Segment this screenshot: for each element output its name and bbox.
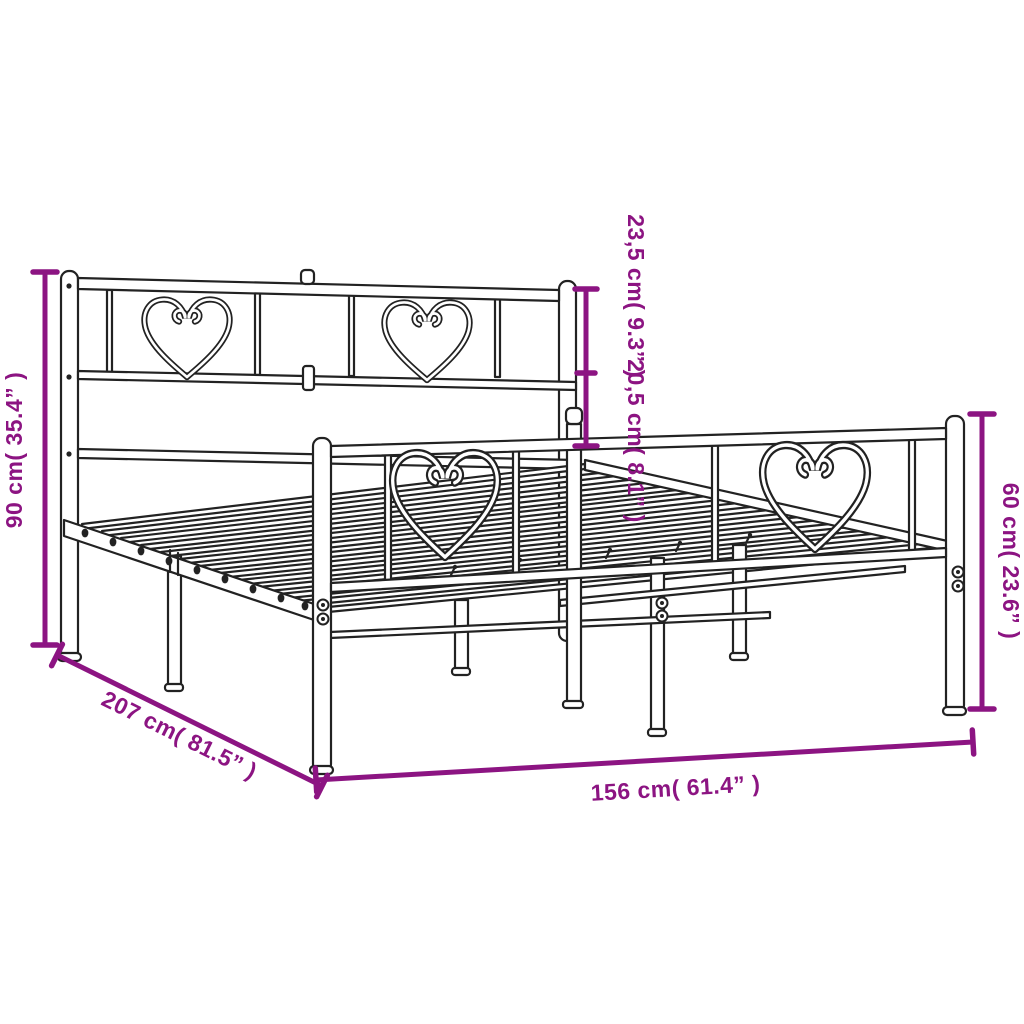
support-leg <box>455 600 468 672</box>
dimension-headboard-height: 90 cm( 35.4” ) <box>1 272 57 645</box>
dimension-label: 156 cm( 61.4” ) <box>590 770 761 806</box>
footboard-center-foot <box>563 701 583 708</box>
footboard-right-post <box>946 416 964 713</box>
headboard-center-connector <box>303 366 314 390</box>
dimension-footboard-height: 60 cm( 23.6” ) <box>970 414 1024 709</box>
dimension-label: 207 cm( 81.5” ) <box>98 685 262 784</box>
footboard-right-foot <box>943 707 966 715</box>
support-foot <box>648 729 666 736</box>
dimension-line <box>316 742 973 780</box>
dimension-label: 90 cm( 35.4” ) <box>1 372 27 529</box>
dimension-label: 60 cm( 23.6” ) <box>998 483 1024 640</box>
dimension-line <box>57 655 322 786</box>
dimension-label: 23,5 cm( 9.3” ) <box>623 214 649 377</box>
headboard-center-connector <box>301 270 314 284</box>
headboard-bar <box>255 293 260 375</box>
support-foot <box>165 684 183 691</box>
footboard-bar <box>909 438 915 551</box>
dimension-frame-length: 207 cm( 81.5” ) <box>52 644 328 796</box>
footboard-bar <box>712 444 718 563</box>
headboard-bar <box>495 298 500 377</box>
headboard-top-rail <box>78 278 559 301</box>
bed-frame-dimension-diagram: 90 cm( 35.4” ) 23,5 cm( 9.3” ) 20,5 cm( … <box>0 0 1024 1024</box>
footboard-center-connector <box>566 408 582 424</box>
footboard-center-post <box>567 424 581 707</box>
dimension-label: 20,5 cm( 8.1” ) <box>623 359 649 522</box>
heart-icon <box>144 299 229 377</box>
headboard-bar <box>349 295 354 376</box>
support-leg <box>651 558 664 733</box>
dimension-frame-width: 156 cm( 61.4” ) <box>315 730 973 806</box>
slat-platform <box>64 460 952 736</box>
screw-dot <box>66 451 71 456</box>
footboard-bar <box>513 449 519 577</box>
screw-dot <box>66 283 71 288</box>
diagram-canvas: 90 cm( 35.4” ) 23,5 cm( 9.3” ) 20,5 cm( … <box>0 0 1024 1024</box>
heart-icon <box>384 302 469 380</box>
support-foot <box>730 653 748 660</box>
headboard-mid-rail <box>78 371 576 390</box>
lower-support-rail <box>330 612 770 638</box>
screw-dot <box>66 374 71 379</box>
headboard-bar <box>107 290 112 374</box>
support-foot <box>452 668 470 675</box>
headboard-left-post <box>61 271 78 659</box>
